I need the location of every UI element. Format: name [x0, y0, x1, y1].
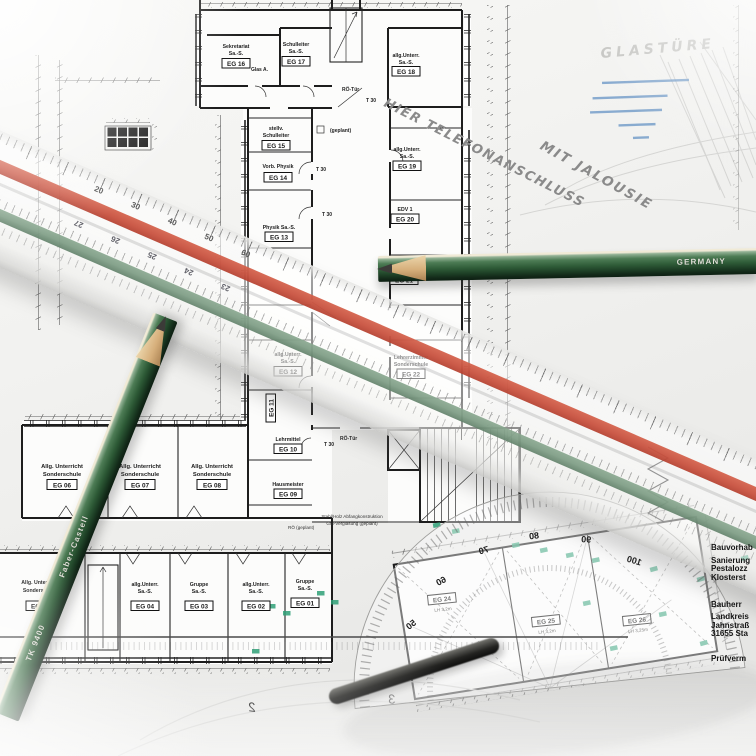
abfang-note: Stahl/Holz Abfangkonstruktion: [321, 514, 383, 519]
svg-text:EG 04: EG 04: [136, 604, 155, 611]
svg-text:Sonderschule: Sonderschule: [193, 472, 232, 478]
room-label-eg07: Allg. Unterricht Sonderschule EG 07: [119, 464, 161, 490]
roe-tuer-note-mid: RÖ-Tür: [340, 435, 357, 442]
room-label-eg11: EG 11: [266, 394, 276, 422]
glas-a-note: Glas A.: [251, 67, 269, 73]
title-line: Klosterst: [711, 574, 756, 583]
svg-text:Sa.-S.: Sa.-S.: [229, 51, 244, 57]
svg-text:EG 01: EG 01: [296, 601, 315, 608]
photo-scene: Sekretariat Sa.-S. EG 16 Schulleiter Sa.…: [0, 0, 756, 756]
room-label-eg09: Hausmeister EG 09: [272, 482, 303, 499]
svg-text:Gruppe: Gruppe: [190, 582, 209, 588]
t30-note-4: T 30: [324, 442, 334, 448]
svg-text:Schulleiter: Schulleiter: [283, 42, 310, 48]
title-project-label: Bauvorhab: [711, 544, 756, 553]
ghost-scale-digit: 2: [247, 699, 258, 715]
window-detail-grid: [105, 126, 151, 150]
svg-text:EG 11: EG 11: [269, 399, 276, 417]
svg-text:Physik Sa.-S.: Physik Sa.-S.: [263, 225, 296, 231]
svg-text:Sa.-S.: Sa.-S.: [399, 60, 414, 66]
svg-text:Sa.-S.: Sa.-S.: [289, 49, 304, 55]
pencil-germany-text: GERMANY: [677, 257, 726, 267]
svg-text:EG 16: EG 16: [227, 61, 246, 68]
room-label-eg10: Lehrmittel EG 10: [274, 437, 302, 454]
svg-text:EG 06: EG 06: [53, 483, 72, 490]
svg-text:Hausmeister: Hausmeister: [272, 482, 303, 488]
svg-text:EG 02: EG 02: [247, 604, 266, 611]
roe-geplant-note: RÖ (geplant): [288, 524, 315, 530]
svg-text:Allg. Unterricht: Allg. Unterricht: [191, 464, 233, 470]
svg-text:EG 10: EG 10: [279, 447, 298, 454]
svg-text:Sekretariat: Sekretariat: [223, 44, 250, 50]
verglasung-note: GM-Verglasung (geplant): [326, 521, 378, 526]
svg-text:EG 19: EG 19: [398, 164, 417, 171]
t30-note-1: T 30: [366, 98, 376, 104]
svg-text:EG 08: EG 08: [203, 483, 222, 490]
title-block: Bauvorhab Sanierung Pestalozz Klosterst …: [711, 544, 756, 663]
svg-text:Allg. Unterricht: Allg. Unterricht: [41, 464, 83, 470]
title-owner-label: Bauherr: [711, 601, 756, 610]
svg-text:EG 13: EG 13: [270, 235, 289, 242]
svg-text:Gruppe: Gruppe: [296, 579, 315, 585]
svg-text:allg.Unterr.: allg.Unterr.: [131, 582, 159, 588]
svg-text:Sa.-S.: Sa.-S.: [249, 589, 264, 595]
roe-tuer-note-top: RÖ-Tür: [342, 86, 359, 93]
svg-text:Sa.-S.: Sa.-S.: [192, 589, 207, 595]
svg-text:EDV 1: EDV 1: [398, 207, 413, 213]
geplant-note: (geplant): [330, 128, 351, 134]
svg-text:EG 17: EG 17: [287, 59, 306, 66]
svg-text:Sa.-S.: Sa.-S.: [298, 586, 313, 592]
room-label-eg06: Allg. Unterricht Sonderschule EG 06: [41, 464, 83, 490]
svg-text:EG 03: EG 03: [190, 604, 209, 611]
ghost-scale-digit: 3: [387, 691, 397, 707]
svg-text:Sa.-S.: Sa.-S.: [138, 589, 153, 595]
room-label-eg14: Vorb. Physik EG 14: [262, 164, 293, 182]
t30-note-3: T 30: [322, 212, 332, 218]
room-label-eg13: Physik Sa.-S. EG 13: [263, 225, 296, 242]
svg-text:EG 14: EG 14: [269, 175, 288, 182]
svg-text:EG 15: EG 15: [267, 143, 286, 150]
t30-note-2: T 30: [316, 167, 326, 173]
svg-text:Schulleiter: Schulleiter: [263, 133, 290, 139]
svg-text:EG 09: EG 09: [279, 492, 298, 499]
svg-text:EG 18: EG 18: [397, 69, 416, 76]
svg-text:Sonderschule: Sonderschule: [43, 472, 82, 478]
svg-text:allg.Unterr.: allg.Unterr.: [242, 582, 270, 588]
svg-text:allg.Unterr.: allg.Unterr.: [392, 53, 420, 59]
svg-text:Vorb. Physik: Vorb. Physik: [262, 164, 293, 170]
svg-text:EG 07: EG 07: [131, 483, 150, 490]
title-line: 31655 Sta: [711, 630, 756, 639]
svg-text:stellv.: stellv.: [269, 126, 284, 132]
svg-text:Sonderschule: Sonderschule: [121, 472, 160, 478]
svg-text:Allg. Unterricht: Allg. Unterricht: [119, 464, 161, 470]
svg-text:Lehrmittel: Lehrmittel: [275, 437, 301, 443]
svg-text:allg.Unterr.: allg.Unterr.: [393, 147, 421, 153]
svg-text:EG 20: EG 20: [396, 217, 415, 224]
room-label-eg08: Allg. Unterricht Sonderschule EG 08: [191, 464, 233, 490]
title-check-label: Prüfverm: [711, 655, 756, 664]
svg-text:Sa.-S.: Sa.-S.: [400, 154, 415, 160]
